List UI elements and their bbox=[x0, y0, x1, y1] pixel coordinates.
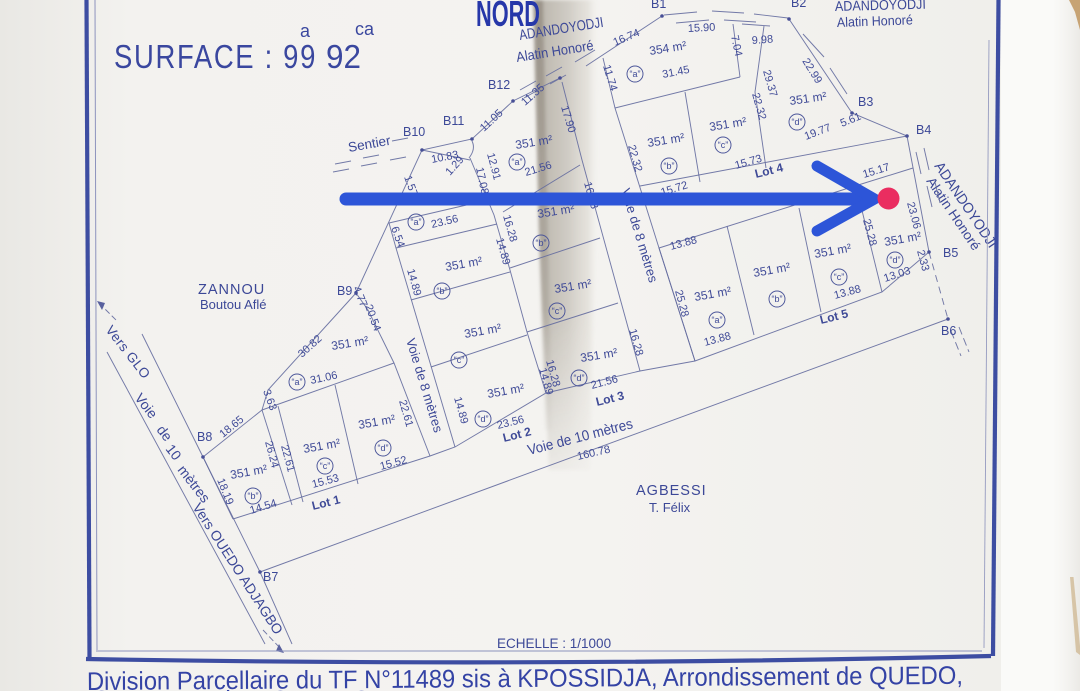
svg-text:Alatin Honoré: Alatin Honoré bbox=[837, 12, 913, 30]
svg-text:B11: B11 bbox=[443, 114, 464, 128]
svg-text:“c”: “c” bbox=[320, 461, 331, 471]
svg-text:“c”: “c” bbox=[718, 140, 729, 150]
svg-text:B10: B10 bbox=[403, 125, 425, 139]
svg-text:“b”: “b” bbox=[772, 294, 783, 304]
svg-text:“a”: “a” bbox=[712, 315, 723, 325]
svg-text:9.98: 9.98 bbox=[751, 34, 773, 47]
svg-text:“d”: “d” bbox=[792, 117, 803, 127]
svg-text:ECHELLE : 1/1000: ECHELLE : 1/1000 bbox=[497, 636, 611, 651]
svg-text:“b”: “b” bbox=[437, 286, 448, 296]
svg-text:B7: B7 bbox=[263, 570, 278, 584]
svg-text:B12: B12 bbox=[488, 78, 510, 92]
svg-text:“d”: “d” bbox=[478, 414, 489, 424]
svg-text:B8: B8 bbox=[197, 430, 212, 444]
svg-text:Commune d’ABOMEY-CALAVI: Commune d’ABOMEY-CALAVI bbox=[92, 687, 441, 691]
svg-text:“a”: “a” bbox=[411, 217, 422, 227]
svg-text:“a”: “a” bbox=[630, 69, 641, 79]
svg-text:B1: B1 bbox=[651, 0, 666, 11]
svg-text:ca: ca bbox=[355, 19, 375, 39]
svg-text:92: 92 bbox=[326, 38, 361, 75]
svg-text:15.90: 15.90 bbox=[688, 22, 716, 35]
svg-text:“d”: “d” bbox=[378, 443, 389, 453]
svg-text:SURFACE : 99: SURFACE : 99 bbox=[114, 38, 317, 75]
svg-text:“c”: “c” bbox=[834, 272, 845, 282]
svg-text:B6: B6 bbox=[941, 324, 956, 338]
svg-text:B5: B5 bbox=[943, 246, 958, 260]
svg-text:“b”: “b” bbox=[248, 491, 259, 501]
svg-text:AGBESSI: AGBESSI bbox=[636, 483, 707, 499]
svg-text:Boutou Aflé: Boutou Aflé bbox=[200, 297, 267, 312]
svg-text:“b”: “b” bbox=[536, 238, 547, 248]
svg-text:B4: B4 bbox=[916, 123, 931, 137]
svg-text:a: a bbox=[300, 21, 311, 41]
svg-text:“c”: “c” bbox=[552, 306, 563, 316]
svg-text:“c”: “c” bbox=[454, 355, 465, 365]
svg-text:B9: B9 bbox=[337, 284, 352, 298]
svg-text:ZANNOU: ZANNOU bbox=[198, 282, 265, 298]
svg-text:“a”: “a” bbox=[512, 157, 523, 167]
svg-text:T. Félix: T. Félix bbox=[649, 500, 691, 515]
svg-text:“d”: “d” bbox=[574, 373, 585, 383]
svg-text:“d”: “d” bbox=[890, 255, 901, 265]
svg-text:“b”: “b” bbox=[664, 161, 675, 171]
svg-text:“a”: “a” bbox=[292, 377, 303, 387]
svg-text:B3: B3 bbox=[858, 95, 873, 109]
svg-text:B2: B2 bbox=[791, 0, 806, 10]
